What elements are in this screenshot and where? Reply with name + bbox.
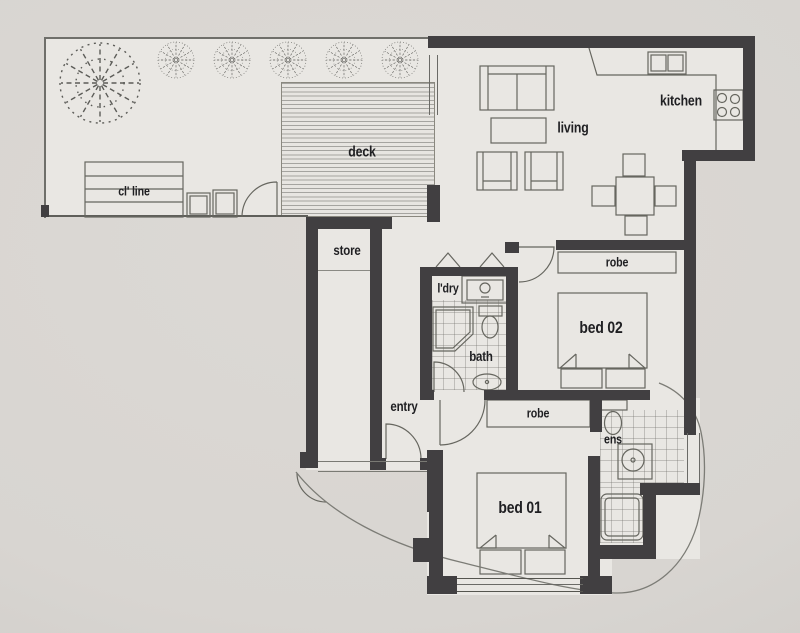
large-tree-icon [60,43,140,123]
kitchen-sink-icon [648,52,686,74]
porch-screen [318,461,427,472]
bed1-robe-label: robe [527,406,549,421]
wall [590,545,656,559]
bed2-robe-label: robe [606,255,628,270]
bath-basin-icon [473,374,501,390]
bed2-bed [558,293,647,388]
dining-chair [625,216,647,235]
kitchen-label: kitchen [660,93,702,110]
ens-basin-icon [618,444,652,479]
armchair [525,152,563,190]
ens-shower [601,494,643,540]
wall [427,576,457,594]
wall [420,390,434,400]
wall [484,390,650,400]
garden-gate-door-arc [242,182,277,217]
wall [413,538,437,562]
wall [41,205,49,217]
bath-toilet-icon [479,306,502,338]
coffee-table [491,118,546,143]
laundry-label: l'dry [437,281,458,296]
linen-door-chevrons-icon [436,253,504,267]
ens-window [687,433,700,483]
living-label: living [557,120,588,137]
wall [306,229,318,458]
wall [427,267,517,276]
deck-label: deck [348,144,375,161]
ens-toilet-icon [600,400,627,435]
bath-shower [433,307,473,351]
laundry-trough-icon [462,276,508,303]
wall [505,242,519,253]
dining-table [592,154,676,235]
floor-plan: cl' line deck living kitchen store l'dry… [0,0,800,633]
bush-icon [326,42,362,78]
wall [370,229,382,462]
wall [506,267,518,398]
wall [427,185,440,222]
wall [643,495,656,547]
bath-label: bath [469,348,493,364]
bush-icon [158,42,194,78]
bed1-door-arc [440,400,485,445]
wall [640,483,700,495]
armchair [477,152,517,190]
wall [306,217,392,229]
pillow [606,369,645,388]
bush-icon [270,42,306,78]
pillow [525,550,565,574]
wall [427,450,443,512]
wall [588,456,600,580]
wall [556,240,684,250]
bed1-bed [477,473,566,574]
pillow [561,369,602,388]
store-label: store [333,242,360,258]
bed1-label: bed 01 [498,498,541,518]
bed1-window [457,578,583,592]
dining-chair [592,186,615,206]
entry-label: entry [390,398,417,414]
pillow [480,550,521,574]
bush-icon [214,42,250,78]
planter-box [187,190,237,217]
wall [590,400,602,432]
bed2-label: bed 02 [579,318,622,338]
clothesline-label: cl' line [118,184,149,199]
cooktop-icon [714,90,743,120]
wall [428,36,755,48]
sofa [480,66,554,110]
dining-chair [655,186,676,206]
wall [420,267,432,398]
living-deck-window [429,55,438,115]
bush-icon [382,42,418,78]
wall [300,452,318,468]
wall [684,150,696,435]
ens-label: ens [604,432,622,447]
bath-door-arc [434,362,464,392]
entry-door-arc [386,424,421,459]
bed2-door-arc [519,247,554,282]
wall [743,36,755,161]
dining-chair [623,154,645,176]
